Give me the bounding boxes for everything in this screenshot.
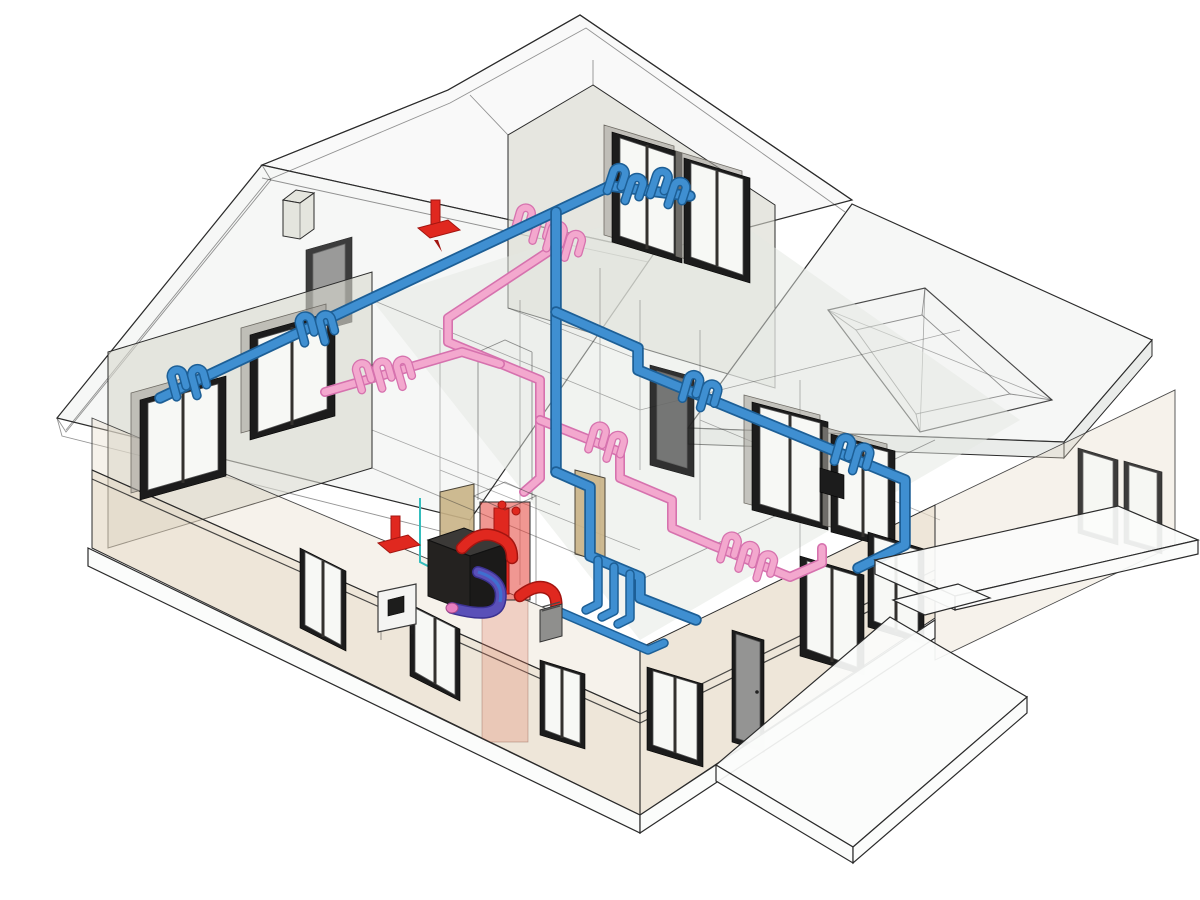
roof-vent [378, 516, 420, 553]
duct-end-cap [446, 603, 458, 613]
pipe-chase-lower [482, 600, 528, 742]
chase-pipe-cap [498, 501, 506, 509]
chase-pipe-cap [512, 507, 520, 515]
window [647, 667, 703, 767]
house-rendering-canvas [0, 0, 1200, 900]
window [676, 151, 750, 283]
chimney-box [283, 190, 314, 239]
bim-house-plumbing-rendering [0, 0, 1200, 900]
door-knob [755, 690, 759, 694]
window [540, 660, 585, 749]
